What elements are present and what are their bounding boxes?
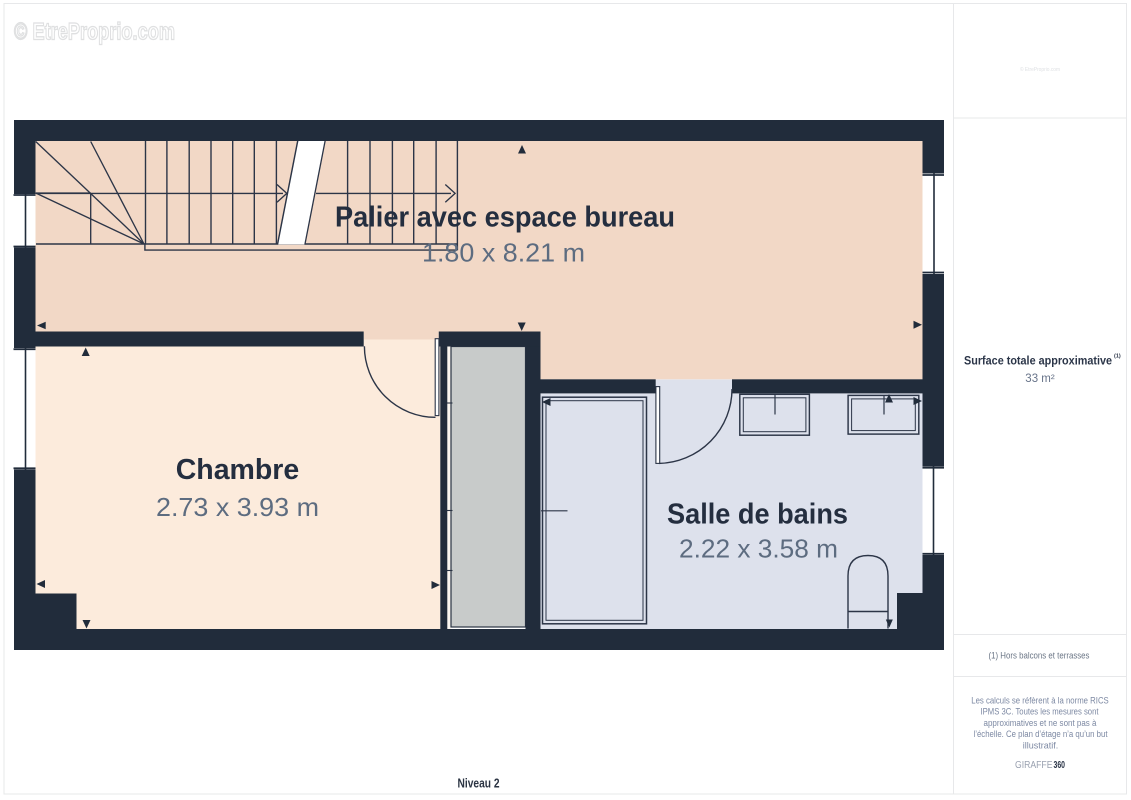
svg-text:approximatives et ne sont pas: approximatives et ne sont pas à xyxy=(984,718,1097,728)
svg-text:illustratif.: illustratif. xyxy=(1023,740,1059,750)
svg-text:Surface totale approximative: Surface totale approximative xyxy=(964,354,1112,368)
svg-text:2.22 x 3.58 m: 2.22 x 3.58 m xyxy=(679,533,838,563)
svg-text:1.80 x 8.21 m: 1.80 x 8.21 m xyxy=(422,237,585,267)
svg-text:GIRAFFE: GIRAFFE xyxy=(1015,760,1053,771)
svg-text:© EtreProprio.com: © EtreProprio.com xyxy=(14,19,175,46)
svg-text:(1): (1) xyxy=(1114,354,1121,360)
svg-text:2.73 x 3.93 m: 2.73 x 3.93 m xyxy=(156,492,319,522)
svg-text:(1) Hors balcons et terrasses: (1) Hors balcons et terrasses xyxy=(989,651,1090,661)
svg-text:Salle de bains: Salle de bains xyxy=(667,499,848,531)
svg-text:33 m²: 33 m² xyxy=(1025,373,1055,385)
svg-text:Les calculs se réfèrent à la n: Les calculs se réfèrent à la norme RICS xyxy=(971,695,1109,705)
svg-text:Chambre: Chambre xyxy=(176,454,300,486)
svg-text:360: 360 xyxy=(1054,760,1066,771)
svg-text:IPMS 3C. Toutes les mesures so: IPMS 3C. Toutes les mesures sont xyxy=(981,707,1099,717)
svg-text:© EtreProprio.com: © EtreProprio.com xyxy=(1020,66,1060,73)
svg-text:Palier avec espace bureau: Palier avec espace bureau xyxy=(335,201,675,233)
svg-text:l’échelle. Ce plan d’étage n’a: l’échelle. Ce plan d’étage n’a qu’un but xyxy=(974,729,1108,739)
svg-text:Niveau 2: Niveau 2 xyxy=(458,775,500,790)
